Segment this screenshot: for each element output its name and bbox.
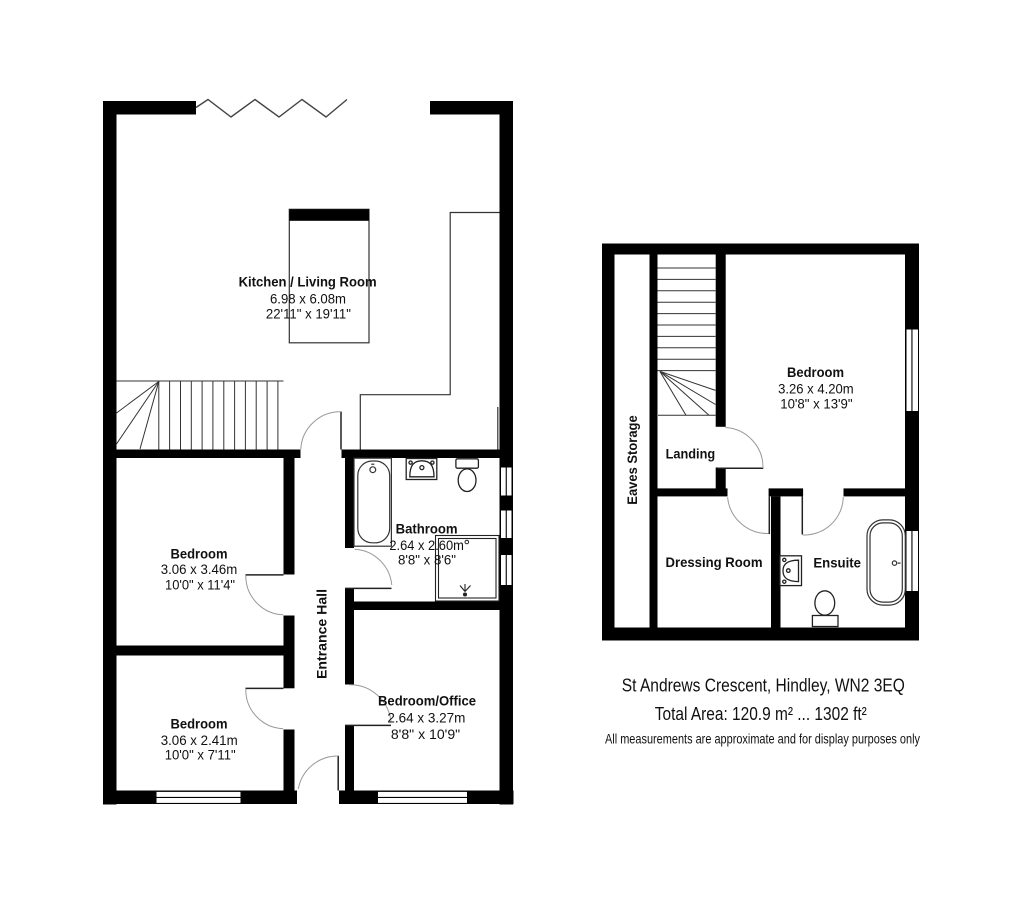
svg-text:10'8" x 13'9": 10'8" x 13'9" xyxy=(780,396,852,412)
svg-text:22'11" x 19'11": 22'11" x 19'11" xyxy=(266,306,351,322)
svg-text:Bedroom: Bedroom xyxy=(787,364,844,380)
svg-text:Bedroom: Bedroom xyxy=(171,716,228,732)
svg-text:3.06 x 3.46m: 3.06 x 3.46m xyxy=(161,561,238,577)
svg-text:Bathroom: Bathroom xyxy=(396,521,458,537)
svg-text:Bedroom/Office: Bedroom/Office xyxy=(378,693,476,709)
svg-text:Bedroom: Bedroom xyxy=(171,546,228,562)
svg-text:6.98 x 6.08m: 6.98 x 6.08m xyxy=(270,291,346,307)
svg-text:Ensuite: Ensuite xyxy=(813,555,861,571)
svg-text:Entrance Hall: Entrance Hall xyxy=(314,589,330,679)
svg-text:Eaves Storage: Eaves Storage xyxy=(624,415,640,505)
svg-text:3.06 x 2.41m: 3.06 x 2.41m xyxy=(161,732,238,748)
svg-text:2.64 x 2.60m: 2.64 x 2.60m xyxy=(389,537,464,553)
svg-text:Landing: Landing xyxy=(666,446,716,462)
svg-text:Kitchen / Living Room: Kitchen / Living Room xyxy=(239,274,377,290)
svg-text:10'0" x 7'11": 10'0" x 7'11" xyxy=(165,747,236,763)
svg-text:10'0" x 11'4": 10'0" x 11'4" xyxy=(165,576,235,592)
svg-text:8'8" x 8'6": 8'8" x 8'6" xyxy=(398,552,456,568)
svg-text:Dressing Room: Dressing Room xyxy=(666,554,763,570)
svg-text:8'8" x 10'9": 8'8" x 10'9" xyxy=(391,726,460,742)
svg-text:2.64 x 3.27m: 2.64 x 3.27m xyxy=(387,710,465,726)
svg-text:3.26 x 4.20m: 3.26 x 4.20m xyxy=(778,380,854,396)
svg-text:St Andrews Crescent, Hindley,: St Andrews Crescent, Hindley, WN2 3EQ xyxy=(622,675,905,696)
svg-text:Total Area: 120.9 m² ... 1302: Total Area: 120.9 m² ... 1302 ft² xyxy=(655,703,867,724)
svg-text:All measurements are approxima: All measurements are approximate and for… xyxy=(605,730,920,746)
